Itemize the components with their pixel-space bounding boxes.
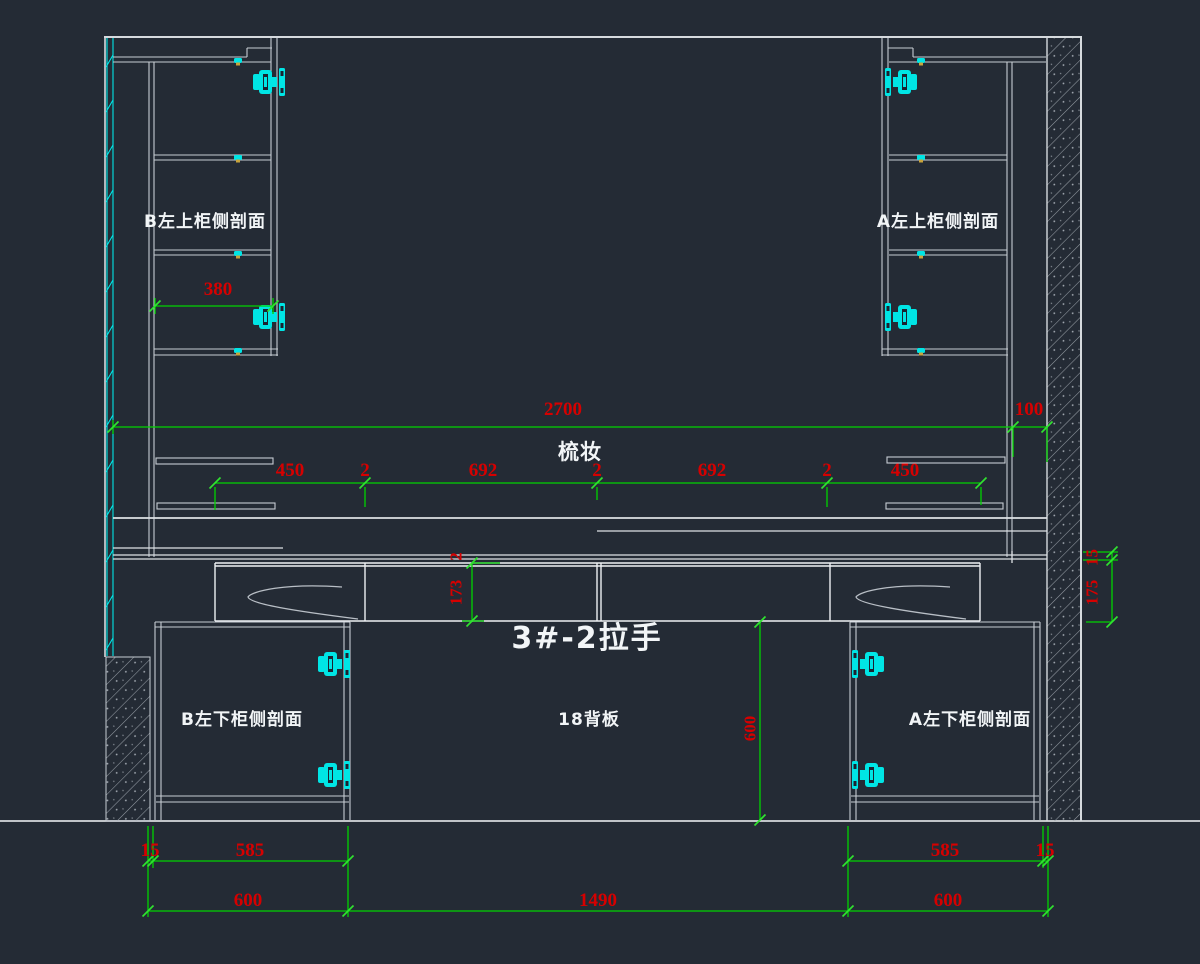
dim-counter-15: 15 xyxy=(1084,547,1101,569)
hinge-icon xyxy=(253,303,285,331)
dim-plinth-right-585: 585 xyxy=(910,841,980,860)
dim-chain-2b: 2 xyxy=(582,461,612,480)
dim-plinth-right-15: 15 xyxy=(1026,841,1064,860)
dim-drawer-gap-2: 2 xyxy=(448,547,465,567)
drawing-linework xyxy=(0,0,1200,964)
dim-plinth-left-585: 585 xyxy=(215,841,285,860)
cad-viewport[interactable]: B左上柜侧剖面 A左上柜侧剖面 B左下柜侧剖面 A左下柜侧剖面 18背板 梳妆 … xyxy=(0,0,1200,964)
hinge-icon xyxy=(885,303,917,331)
label-base-cabinet-left: B左下柜侧剖面 xyxy=(167,712,317,729)
hinge-icon xyxy=(253,68,285,96)
hinge-icon xyxy=(852,650,884,678)
hinge-icon xyxy=(318,761,350,789)
hinge-icon xyxy=(852,761,884,789)
right-wall xyxy=(1047,37,1082,821)
label-back-panel: 18背板 xyxy=(529,712,649,729)
label-handle: 3#-2拉手 xyxy=(482,624,692,654)
label-upper-cabinet-left: B左上柜侧剖面 xyxy=(130,214,280,231)
dim-chain-450: 450 xyxy=(255,461,325,480)
hinge-icons xyxy=(253,68,917,789)
shelf-pin-icons xyxy=(234,58,925,356)
dim-plinth-left-15: 15 xyxy=(131,841,169,860)
dim-counter-width-2700: 2700 xyxy=(523,400,603,419)
dim-drawer-height-173: 173 xyxy=(448,573,465,613)
dim-chain-2: 2 xyxy=(350,461,380,480)
dim-base-1490: 1490 xyxy=(553,891,643,910)
dim-wall-gap-100: 100 xyxy=(999,400,1059,419)
hinge-icon xyxy=(885,68,917,96)
dimension-lines xyxy=(113,298,1118,917)
dim-chain-2c: 2 xyxy=(812,461,842,480)
dim-chain-692: 692 xyxy=(448,461,518,480)
hinge-icon xyxy=(318,650,350,678)
dim-band-175: 175 xyxy=(1084,572,1101,614)
countertop xyxy=(113,518,1047,563)
dim-base-600-right: 600 xyxy=(913,891,983,910)
dim-chain-692b: 692 xyxy=(677,461,747,480)
dim-chain-450b: 450 xyxy=(870,461,940,480)
dim-backpanel-600: 600 xyxy=(742,708,759,750)
dim-shelf-depth-380: 380 xyxy=(183,280,253,299)
label-upper-cabinet-right: A左上柜侧剖面 xyxy=(863,214,1013,231)
label-base-cabinet-right: A左下柜侧剖面 xyxy=(895,712,1045,729)
dimension-ticks xyxy=(108,301,1118,917)
dim-base-600-left: 600 xyxy=(213,891,283,910)
left-wall-lower xyxy=(106,657,150,821)
left-wall-finish-strip xyxy=(106,38,113,656)
drawer-band xyxy=(215,563,980,621)
label-vanity: 梳妆 xyxy=(545,442,615,463)
